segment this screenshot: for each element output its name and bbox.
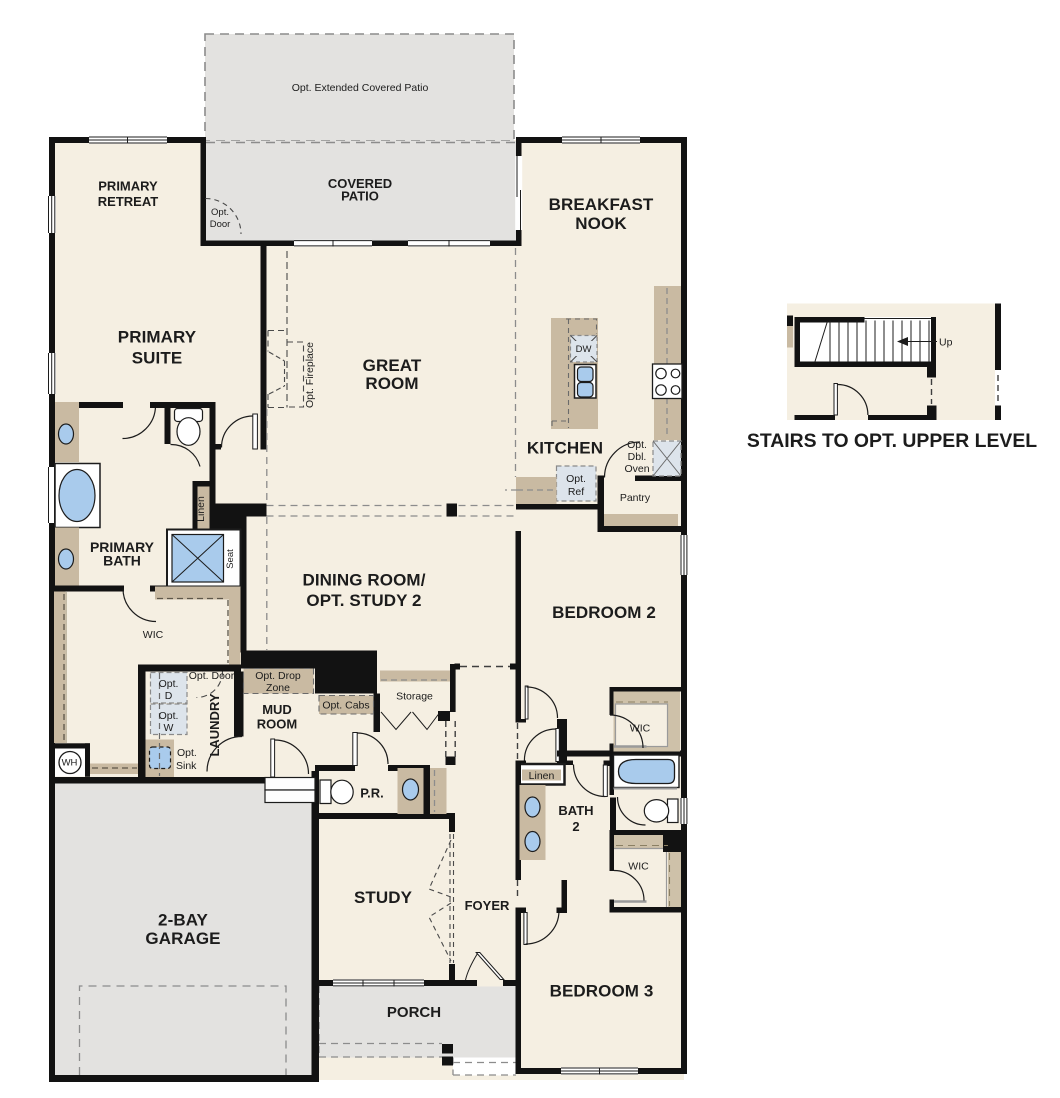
svg-text:Door: Door (210, 219, 231, 230)
svg-text:Storage: Storage (396, 691, 433, 703)
svg-text:GARAGE: GARAGE (145, 929, 220, 948)
svg-text:Opt. Door: Opt. Door (189, 670, 235, 682)
svg-text:Opt. Drop: Opt. Drop (255, 670, 301, 682)
svg-text:Opt.: Opt. (159, 710, 179, 722)
svg-text:Opt.: Opt. (566, 473, 586, 485)
svg-text:BATH: BATH (103, 553, 141, 569)
svg-text:Ref: Ref (568, 486, 584, 498)
svg-text:Oven: Oven (624, 463, 649, 475)
svg-text:WIC: WIC (143, 629, 164, 641)
svg-text:STAIRS TO OPT. UPPER LEVEL: STAIRS TO OPT. UPPER LEVEL (747, 430, 1037, 452)
svg-text:Opt.: Opt. (177, 747, 197, 759)
svg-text:Seat: Seat (225, 549, 236, 569)
svg-text:STUDY: STUDY (354, 888, 413, 907)
svg-text:WH: WH (62, 758, 78, 769)
svg-text:GREAT: GREAT (363, 356, 422, 375)
svg-text:KITCHEN: KITCHEN (527, 439, 603, 458)
svg-text:2: 2 (572, 819, 579, 834)
svg-text:BEDROOM 3: BEDROOM 3 (550, 982, 654, 1001)
svg-text:Opt.: Opt. (159, 678, 179, 690)
svg-text:PRIMARY: PRIMARY (98, 179, 158, 194)
svg-text:Pantry: Pantry (620, 492, 651, 504)
svg-text:LAUNDRY: LAUNDRY (207, 693, 222, 756)
svg-text:DW: DW (576, 344, 592, 355)
svg-text:Dbl.: Dbl. (628, 451, 647, 463)
svg-text:MUD: MUD (262, 702, 292, 717)
svg-text:Opt.: Opt. (211, 207, 229, 218)
svg-text:Up: Up (939, 337, 953, 349)
svg-text:DINING ROOM/: DINING ROOM/ (302, 571, 425, 590)
svg-text:Sink: Sink (176, 760, 197, 772)
svg-text:WIC: WIC (630, 723, 651, 735)
svg-text:Linen: Linen (195, 496, 207, 522)
svg-text:Linen: Linen (529, 770, 555, 782)
svg-text:D: D (165, 690, 173, 702)
svg-text:BREAKFAST: BREAKFAST (549, 195, 654, 214)
svg-text:2-BAY: 2-BAY (158, 911, 209, 930)
svg-text:Zone: Zone (266, 682, 290, 694)
svg-text:NOOK: NOOK (575, 214, 627, 233)
svg-text:SUITE: SUITE (132, 349, 183, 368)
svg-text:Opt. Extended Covered Patio: Opt. Extended Covered Patio (292, 82, 429, 94)
svg-text:WIC: WIC (628, 861, 649, 873)
svg-text:RETREAT: RETREAT (98, 194, 158, 209)
svg-text:Opt. Fireplace: Opt. Fireplace (304, 342, 316, 408)
svg-text:PATIO: PATIO (341, 189, 379, 204)
svg-text:FOYER: FOYER (465, 898, 510, 913)
svg-text:OPT. STUDY 2: OPT. STUDY 2 (306, 591, 421, 610)
svg-text:W: W (164, 722, 174, 734)
svg-text:Opt.: Opt. (627, 439, 647, 451)
svg-text:Opt. Cabs: Opt. Cabs (322, 700, 369, 712)
svg-text:PORCH: PORCH (387, 1004, 441, 1021)
svg-text:BEDROOM 2: BEDROOM 2 (552, 603, 656, 622)
svg-text:BATH: BATH (558, 803, 593, 818)
svg-text:ROOM: ROOM (257, 717, 297, 732)
svg-text:PRIMARY: PRIMARY (118, 328, 197, 347)
svg-text:ROOM: ROOM (365, 374, 418, 393)
svg-text:P.R.: P.R. (360, 786, 384, 801)
